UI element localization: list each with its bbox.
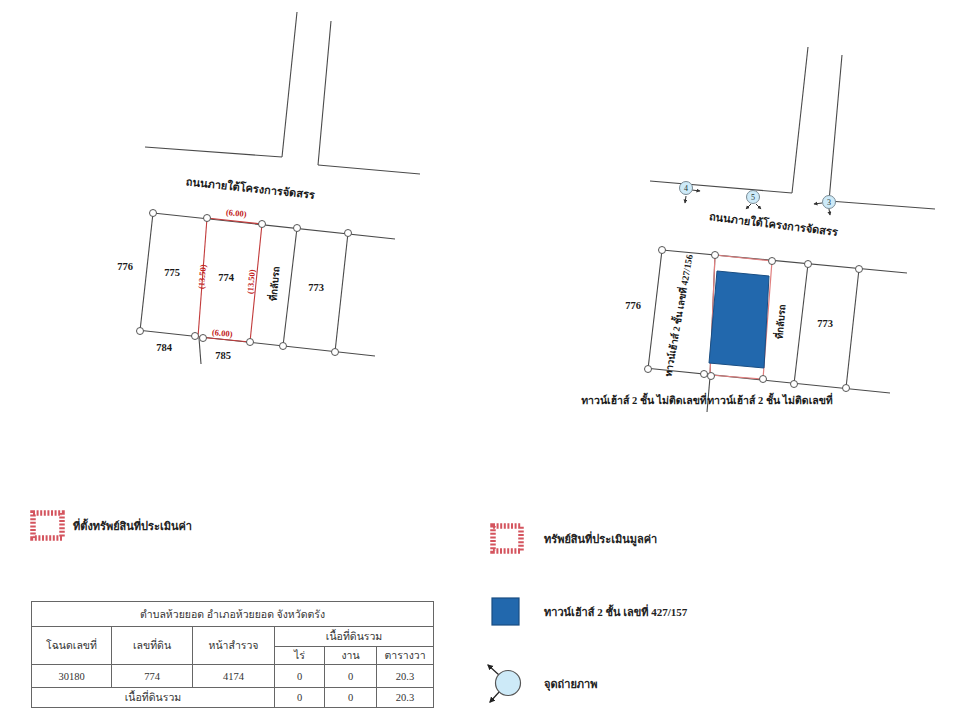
left-parcel-lines	[137, 213, 395, 364]
photo-arrow	[692, 190, 700, 191]
vertex-marker	[192, 333, 199, 340]
document-page: ถนนภายใต้โครงการจัดสรร	[0, 0, 960, 720]
vertex-marker	[345, 230, 352, 237]
legend-appraised-property: ทรัพย์สินที่ประเมินมูลค่า	[488, 522, 657, 556]
header-deed-no: โฉนดเลขที่	[32, 627, 112, 665]
cell-sq-wa: 20.3	[377, 665, 434, 688]
photo-point-3-number: 3	[827, 198, 831, 207]
vertex-marker	[760, 376, 767, 383]
cell-survey-page: 4174	[193, 665, 275, 688]
table-data-row: 30180 774 4174 0 0 20.3	[32, 665, 434, 688]
townhouse-swatch	[488, 597, 544, 627]
vertex-marker	[856, 266, 863, 273]
left-road-label: ถนนภายใต้โครงการจัดสรร	[185, 174, 315, 200]
total-ngan: 0	[325, 688, 377, 708]
photo-arrow	[829, 209, 830, 215]
left-turnaround-label: ที่กลับรถ	[266, 266, 282, 302]
table-total-row: เนื้อที่ดินรวม 0 0 20.3	[32, 688, 434, 708]
table-title: ตำบลห้วยยอด อำเภอห้วยยอด จังหวัดตรัง	[32, 602, 434, 627]
blue-square-icon	[492, 598, 519, 625]
vertex-marker	[712, 252, 719, 259]
vertex-marker	[701, 371, 708, 378]
legend-left-label: ที่ตั้งทรัพย์สินที่ประเมินค่า	[73, 517, 192, 535]
vertex-marker	[200, 335, 207, 342]
photo-point-5-number: 5	[751, 193, 755, 202]
cell-deed-no: 30180	[32, 665, 112, 688]
parcel-label-773: 773	[817, 318, 833, 329]
header-sq-wa: ตารางวา	[377, 647, 434, 665]
bottom-label-left: ทาวน์เฮ้าส์ 2 ชั้น ไม่ติดเลขที่	[581, 392, 707, 406]
parcel-label-773: 773	[308, 282, 324, 293]
cell-rai: 0	[275, 665, 325, 688]
vertex-marker	[708, 373, 715, 380]
vertex-marker	[332, 349, 339, 356]
vertex-marker	[150, 210, 157, 217]
bottom-label-right: ทาวน์เฮ้าส์ 2 ชั้น ไม่ติดเลขที่	[707, 392, 833, 406]
townhouse-vertical-label: ทาวน์เฮ้าส์ 2 ชั้น เลขที่ 427/156	[660, 253, 694, 377]
right-road-label: ถนนภายใต้โครงการจัดสรร	[708, 209, 838, 238]
vertex-marker	[659, 247, 666, 254]
legend-townhouse: ทาวน์เฮ้าส์ 2 ชั้น เลขที่ 427/157	[488, 597, 687, 627]
dim-bottom: (6.00)	[212, 327, 233, 339]
parcel-label-784: 784	[156, 342, 173, 353]
total-label: เนื้อที่ดินรวม	[32, 688, 275, 708]
dim-left: (13.50)	[196, 264, 208, 290]
vertex-marker	[204, 215, 211, 222]
legend-left-appraised-location: ที่ตั้งทรัพย์สินที่ประเมินค่า	[29, 508, 192, 544]
survey-maps: ถนนภายใต้โครงการจัดสรร	[0, 0, 960, 480]
left-map: ถนนภายใต้โครงการจัดสรร	[117, 12, 420, 364]
total-sq-wa: 20.3	[377, 688, 434, 708]
left-road-lines	[145, 12, 420, 174]
table-title-row: ตำบลห้วยยอด อำเภอห้วยยอด จังหวัดตรัง	[32, 602, 434, 627]
photo-arrow	[756, 204, 761, 209]
parcel-label-774: 774	[218, 272, 235, 283]
photo-arrow	[685, 196, 686, 203]
legend-appraised-property-label: ทรัพย์สินที่ประเมินมูลค่า	[544, 530, 657, 548]
cell-land-no: 774	[112, 665, 193, 688]
parcel-label-775: 775	[164, 267, 180, 278]
right-road-lines	[650, 47, 935, 209]
photo-point-circle-icon	[496, 671, 521, 696]
legend-photo-point-label: จุดถ่ายภาพ	[544, 675, 598, 693]
vertex-marker	[247, 339, 254, 346]
photo-point-swatch	[482, 660, 544, 708]
appraised-location-swatch	[29, 508, 73, 544]
header-ngan: งาน	[325, 647, 377, 665]
header-survey-page: หน้าสำรวจ	[193, 627, 275, 665]
header-rai: ไร่	[275, 647, 325, 665]
vertex-marker	[805, 261, 812, 268]
red-hatched-square-icon	[493, 526, 521, 551]
parcel-label-776: 776	[117, 261, 133, 272]
appraised-property-swatch	[488, 522, 544, 556]
vertex-marker	[137, 328, 144, 335]
right-turnaround-label: ที่กลับรถ	[772, 304, 788, 340]
header-land-no: เลขที่ดิน	[112, 627, 193, 665]
legend-townhouse-label: ทาวน์เฮ้าส์ 2 ชั้น เลขที่ 427/157	[544, 603, 687, 621]
vertex-marker	[645, 366, 652, 373]
parcel-info-table: ตำบลห้วยยอด อำเภอห้วยยอด จังหวัดตรัง โฉน…	[31, 601, 434, 708]
parcel-label-776: 776	[625, 300, 641, 311]
vertex-marker	[280, 343, 287, 350]
legend-photo-point: จุดถ่ายภาพ	[482, 660, 598, 708]
photo-points: 4 5 3	[680, 182, 836, 216]
vertex-marker	[843, 385, 850, 392]
vertex-marker	[791, 381, 798, 388]
dim-top: (6.00)	[226, 207, 247, 219]
vertex-marker	[769, 258, 776, 265]
photo-arrow	[490, 691, 500, 702]
red-hatched-square-icon	[33, 513, 62, 538]
header-total-area: เนื้อที่ดินรวม	[275, 627, 434, 647]
right-map: ถนนภายใต้โครงการจัดสรร 4 5 3	[581, 47, 935, 412]
table-header-row: โฉนดเลขที่ เลขที่ดิน หน้าสำรวจ เนื้อที่ด…	[32, 627, 434, 647]
photo-point-4-number: 4	[684, 184, 688, 193]
parcel-label-785: 785	[215, 350, 231, 361]
vertex-marker	[259, 221, 266, 228]
cell-ngan: 0	[325, 665, 377, 688]
vertex-marker	[294, 225, 301, 232]
total-rai: 0	[275, 688, 325, 708]
townhouse-building	[709, 271, 769, 368]
photo-arrow	[814, 203, 822, 204]
photo-arrow	[746, 204, 751, 209]
photo-arrow	[488, 665, 499, 675]
